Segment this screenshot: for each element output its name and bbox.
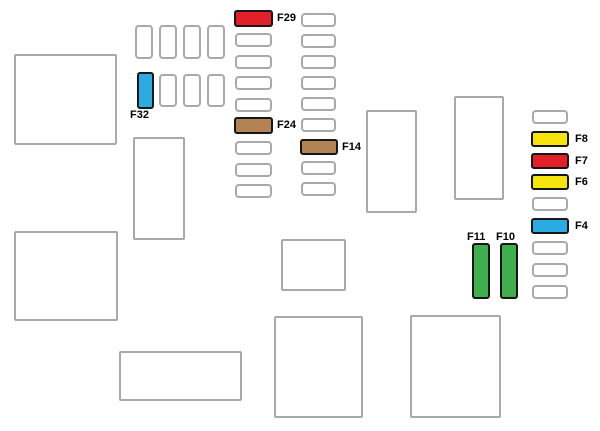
empty-fuse-slot xyxy=(235,141,272,155)
empty-fuse-slot xyxy=(135,25,153,59)
empty-fuse-slot xyxy=(235,98,272,112)
empty-fuse-slot xyxy=(159,74,177,107)
fuse-f29 xyxy=(234,10,273,27)
empty-fuse-slot xyxy=(301,97,336,111)
fuse-f6 xyxy=(531,174,569,190)
empty-fuse-slot xyxy=(301,161,336,175)
fuse-f14 xyxy=(300,139,338,155)
relay-box-center-tall xyxy=(366,110,417,213)
fuse-f10 xyxy=(500,243,518,299)
fuse-f32 xyxy=(137,72,154,109)
empty-fuse-slot xyxy=(183,25,201,59)
empty-fuse-slot xyxy=(235,184,272,198)
empty-fuse-slot xyxy=(532,285,568,299)
fuse-f32-label: F32 xyxy=(130,110,149,121)
empty-fuse-slot xyxy=(532,197,568,211)
relay-box-right-tall xyxy=(454,96,504,200)
fuse-f4-label: F4 xyxy=(575,221,588,232)
empty-fuse-slot xyxy=(301,182,336,196)
empty-fuse-slot xyxy=(532,263,568,277)
fuse-f14-label: F14 xyxy=(342,142,361,153)
component-box-bottom-right xyxy=(410,315,501,418)
empty-fuse-slot xyxy=(301,118,336,132)
empty-fuse-slot xyxy=(235,76,272,90)
fuse-f7 xyxy=(531,153,569,169)
relay-box-left-tall xyxy=(133,137,185,240)
empty-fuse-slot xyxy=(207,74,225,107)
empty-fuse-slot xyxy=(532,110,568,124)
empty-fuse-slot xyxy=(207,25,225,59)
fuse-f8-label: F8 xyxy=(575,134,588,145)
fuse-f24 xyxy=(234,117,273,134)
fuse-f7-label: F7 xyxy=(575,156,588,167)
empty-fuse-slot xyxy=(301,13,336,27)
fuse-f29-label: F29 xyxy=(277,13,296,24)
fuse-f11 xyxy=(472,243,490,299)
empty-fuse-slot xyxy=(183,74,201,107)
component-box-top-left xyxy=(14,54,117,145)
empty-fuse-slot xyxy=(159,25,177,59)
fuse-box-diagram: F32 F29 F24 F14 F8 F7 F6 F4 F11 F10 xyxy=(0,0,600,431)
fuse-f10-label: F10 xyxy=(496,232,515,243)
component-box-mid-left xyxy=(14,231,118,321)
component-box-bottom-wide xyxy=(119,351,242,401)
component-box-bottom-center xyxy=(274,316,363,418)
component-box-center-small xyxy=(281,239,346,291)
empty-fuse-slot xyxy=(235,163,272,177)
empty-fuse-slot xyxy=(301,34,336,48)
fuse-f11-label: F11 xyxy=(467,232,485,243)
fuse-f24-label: F24 xyxy=(277,120,296,131)
empty-fuse-slot xyxy=(235,55,272,69)
empty-fuse-slot xyxy=(235,33,272,47)
empty-fuse-slot xyxy=(301,55,336,69)
fuse-f8 xyxy=(531,131,569,147)
fuse-f4 xyxy=(531,218,569,234)
fuse-f6-label: F6 xyxy=(575,177,588,188)
empty-fuse-slot xyxy=(301,76,336,90)
empty-fuse-slot xyxy=(532,241,568,255)
